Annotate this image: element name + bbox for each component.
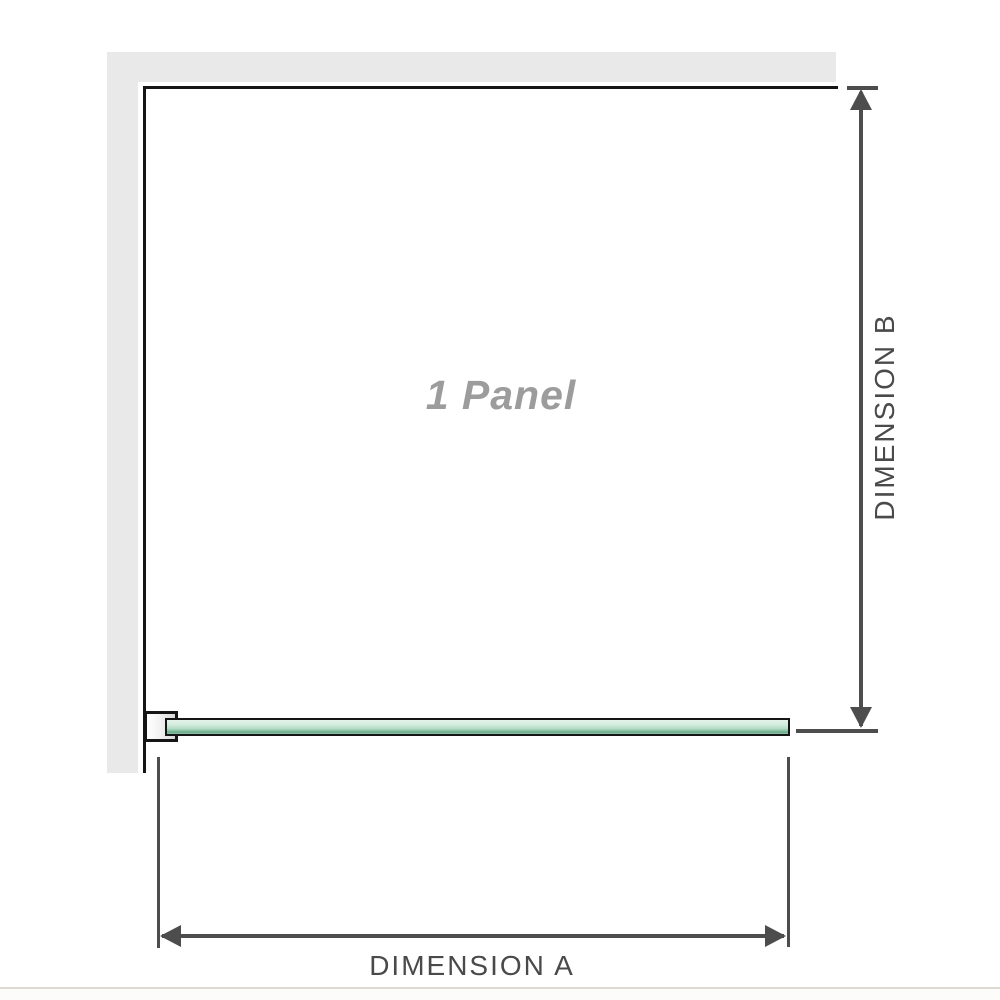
dimension-a-line xyxy=(162,934,784,938)
dimension-a-right-extension xyxy=(787,757,790,947)
arrow-left-icon xyxy=(160,925,181,947)
arrow-down-icon xyxy=(850,707,872,728)
dimension-b-line xyxy=(859,92,863,726)
dimension-a-left-extension xyxy=(157,757,160,948)
dimension-b-bottom-tick xyxy=(796,729,878,733)
glass-panel xyxy=(165,718,790,736)
panel-count-label: 1 Panel xyxy=(301,372,701,422)
diagram-canvas: 1 Panel DIMENSION B DIMENSION A xyxy=(0,0,1000,1000)
wall-inner-edge-top xyxy=(143,86,838,89)
arrow-right-icon xyxy=(765,925,786,947)
wall-top xyxy=(107,52,836,82)
arrow-up-icon xyxy=(850,89,872,110)
dimension-b-label: DIMENSION B xyxy=(869,217,899,617)
wall-inner-edge-left xyxy=(143,86,146,773)
bottom-strip-background xyxy=(0,989,1000,1000)
dimension-a-label: DIMENSION A xyxy=(272,950,672,980)
wall-left xyxy=(107,52,138,773)
